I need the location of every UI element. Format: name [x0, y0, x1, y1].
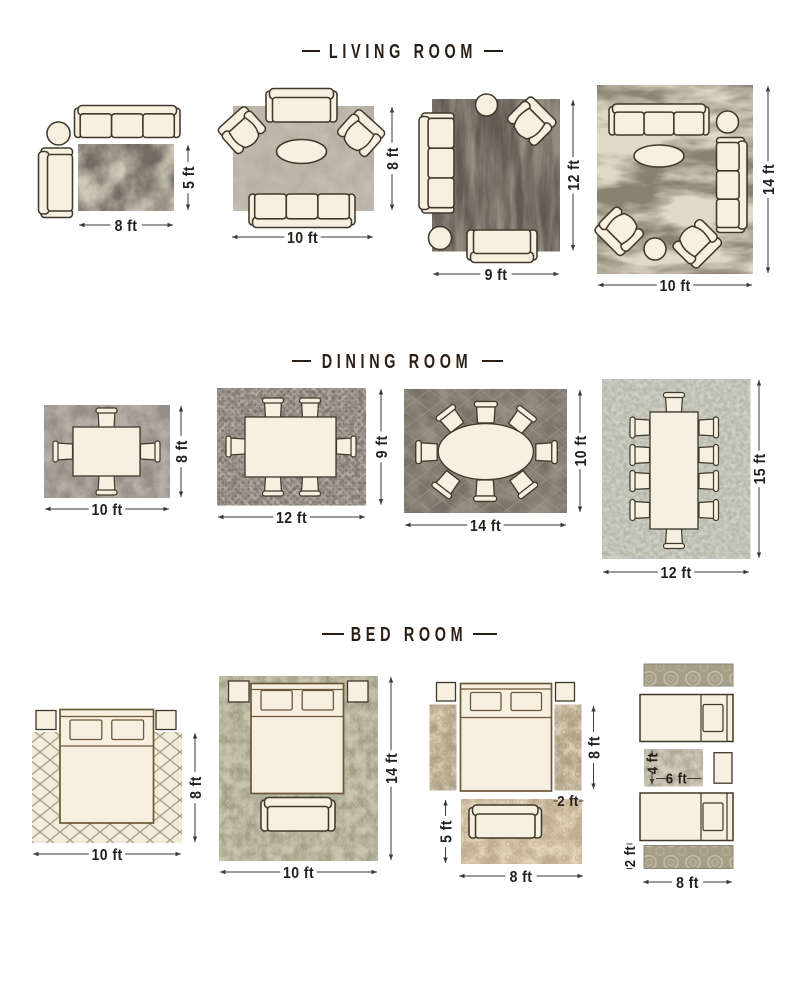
- svg-text:10 ft: 10 ft: [283, 864, 314, 882]
- svg-text:5 ft: 5 ft: [437, 820, 455, 843]
- svg-text:12 ft: 12 ft: [276, 509, 307, 527]
- svg-text:6 ft: 6 ft: [666, 770, 688, 787]
- svg-text:14 ft: 14 ft: [383, 753, 401, 784]
- svg-text:8 ft: 8 ft: [676, 874, 699, 892]
- svg-text:DINING ROOM: DINING ROOM: [322, 350, 473, 373]
- svg-text:10 ft: 10 ft: [91, 846, 122, 864]
- svg-text:12 ft: 12 ft: [565, 160, 583, 191]
- svg-text:14 ft: 14 ft: [760, 164, 778, 195]
- svg-text:10 ft: 10 ft: [91, 501, 122, 519]
- svg-text:8 ft: 8 ft: [510, 868, 533, 886]
- svg-text:9 ft: 9 ft: [373, 435, 391, 458]
- svg-text:12 ft: 12 ft: [660, 564, 691, 582]
- svg-text:5 ft: 5 ft: [180, 166, 198, 189]
- svg-text:14 ft: 14 ft: [470, 517, 501, 535]
- svg-text:9 ft: 9 ft: [485, 266, 508, 284]
- svg-text:8 ft: 8 ft: [115, 217, 138, 235]
- svg-text:8 ft: 8 ft: [187, 776, 205, 799]
- svg-text:15 ft: 15 ft: [751, 453, 769, 484]
- svg-text:10 ft: 10 ft: [659, 277, 690, 295]
- svg-text:8 ft: 8 ft: [384, 147, 402, 170]
- svg-text:8 ft: 8 ft: [173, 440, 191, 463]
- svg-text:2 ft: 2 ft: [557, 792, 579, 809]
- svg-text:4 ft: 4 ft: [644, 753, 661, 775]
- svg-text:10 ft: 10 ft: [572, 435, 590, 466]
- svg-text:2 ft: 2 ft: [621, 846, 638, 868]
- svg-text:LIVING ROOM: LIVING ROOM: [329, 40, 477, 63]
- svg-text:8 ft: 8 ft: [585, 736, 603, 759]
- svg-text:10 ft: 10 ft: [287, 229, 318, 247]
- svg-text:BED ROOM: BED ROOM: [351, 623, 468, 646]
